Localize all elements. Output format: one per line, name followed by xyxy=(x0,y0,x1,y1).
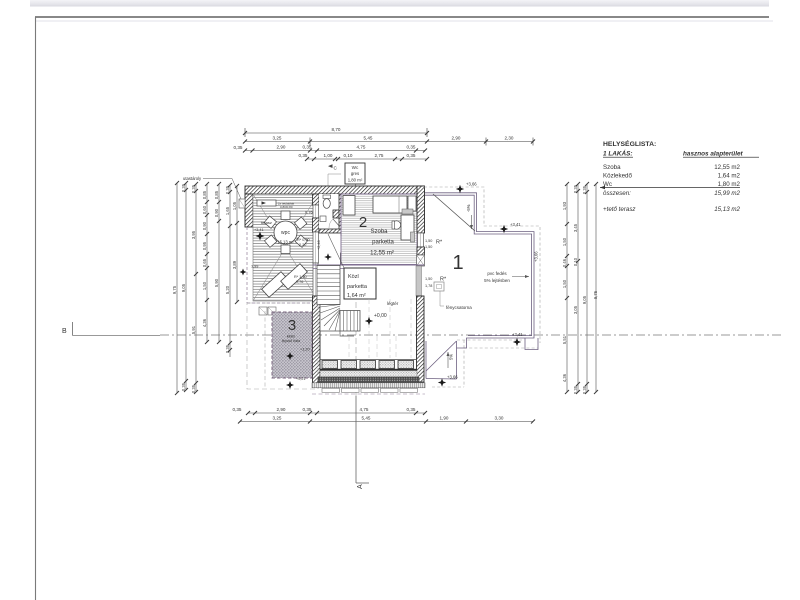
svg-text:5,51: 5,51 xyxy=(562,335,567,344)
svg-text:4,36: 4,36 xyxy=(202,318,207,327)
svg-text:12,55 m2: 12,55 m2 xyxy=(714,164,740,171)
svg-text:5,91: 5,91 xyxy=(191,325,196,334)
svg-text:1,00: 1,00 xyxy=(324,153,333,158)
svg-text:fénycsatorna: fénycsatorna xyxy=(446,305,472,310)
svg-text:2,75: 2,75 xyxy=(375,153,384,158)
svg-text:0,35: 0,35 xyxy=(582,185,587,194)
svg-text:0,60: 0,60 xyxy=(202,205,207,214)
svg-text:2,30: 2,30 xyxy=(505,136,514,141)
svg-text:hasznos alapterület: hasznos alapterület xyxy=(683,151,744,158)
svg-text:0,35: 0,35 xyxy=(407,145,416,150)
svg-text:0,10: 0,10 xyxy=(573,257,578,266)
svg-text:3,95: 3,95 xyxy=(191,230,196,239)
svg-text:0,95: 0,95 xyxy=(202,241,207,250)
svg-text:Wc: Wc xyxy=(352,165,359,170)
svg-text:1: 1 xyxy=(452,252,463,274)
svg-text:0,35: 0,35 xyxy=(225,185,230,194)
svg-text:összesen:: összesen: xyxy=(603,190,631,197)
svg-text:1,05: 1,05 xyxy=(232,201,237,210)
svg-text:0,90: 0,90 xyxy=(202,221,207,230)
svg-text:+3,41: +3,41 xyxy=(254,228,264,232)
svg-text:+2,46: +2,46 xyxy=(317,240,321,250)
svg-text:B: B xyxy=(62,328,67,335)
svg-text:9,75: 9,75 xyxy=(172,285,177,294)
svg-text:0,35: 0,35 xyxy=(234,145,243,150)
svg-text:9,75: 9,75 xyxy=(593,290,598,299)
svg-text:0,35: 0,35 xyxy=(225,344,230,353)
svg-text:3,89: 3,89 xyxy=(232,260,237,269)
svg-text:2,20: 2,20 xyxy=(299,243,306,247)
svg-text:0,35: 0,35 xyxy=(181,183,186,192)
svg-text:0,85: 0,85 xyxy=(214,190,219,199)
svg-text:+3,41: +3,41 xyxy=(512,332,523,337)
svg-text:1,80 m²: 1,80 m² xyxy=(348,178,363,183)
svg-text:Szoba: Szoba xyxy=(370,229,388,235)
svg-text:1,99: 1,99 xyxy=(251,265,258,269)
svg-text:2: 2 xyxy=(359,214,367,231)
svg-text:12,55 m²: 12,55 m² xyxy=(370,251,394,257)
svg-text:2,90: 2,90 xyxy=(277,407,286,412)
svg-text:1,64 m2: 1,64 m2 xyxy=(718,173,741,180)
svg-text:9,05: 9,05 xyxy=(181,283,186,292)
svg-text:gres: gres xyxy=(351,171,359,176)
svg-text:4,75: 4,75 xyxy=(360,407,369,412)
svg-text:Közlekedő: Közlekedő xyxy=(603,173,632,180)
svg-text:5,45: 5,45 xyxy=(362,416,371,421)
svg-text:0,35: 0,35 xyxy=(191,184,196,193)
svg-text:wpc: wpc xyxy=(281,230,290,236)
svg-text:R*: R* xyxy=(436,240,443,246)
svg-text:2,90: 2,90 xyxy=(452,136,461,141)
svg-text:Közl: Közl xyxy=(348,274,359,280)
svg-text:1,50: 1,50 xyxy=(562,279,567,288)
svg-text:1,50: 1,50 xyxy=(562,237,567,246)
svg-text:1,50: 1,50 xyxy=(425,239,432,243)
svg-text:R* 0,90: R* 0,90 xyxy=(297,238,310,242)
svg-text:0,76: 0,76 xyxy=(296,280,303,284)
svg-text:0,35: 0,35 xyxy=(303,407,312,412)
svg-text:utastároly: utastároly xyxy=(183,176,202,181)
svg-text:+0,00: +0,00 xyxy=(374,313,387,319)
svg-text:5,20: 5,20 xyxy=(225,285,230,294)
svg-text:1,93: 1,93 xyxy=(562,201,567,210)
svg-text:3,45: 3,45 xyxy=(573,223,578,232)
svg-text:+3,66: +3,66 xyxy=(447,375,458,380)
svg-text:8,70: 8,70 xyxy=(332,127,341,132)
svg-text:0,46: 0,46 xyxy=(562,258,567,267)
svg-text:légtér: légtér xyxy=(387,301,399,306)
svg-text:3,30: 3,30 xyxy=(495,416,504,421)
svg-text:+0,21: +0,21 xyxy=(296,377,306,381)
svg-text:15,99 m2: 15,99 m2 xyxy=(714,190,740,197)
svg-text:0,65: 0,65 xyxy=(202,258,207,267)
svg-text:0,80/0,80: 0,80/0,80 xyxy=(280,205,293,209)
svg-text:0,85: 0,85 xyxy=(202,190,207,199)
svg-text:15,13 m2: 15,13 m2 xyxy=(714,206,740,213)
svg-text:0,35: 0,35 xyxy=(582,385,587,394)
svg-text:0,35: 0,35 xyxy=(181,382,186,391)
svg-text:1,50: 1,50 xyxy=(425,245,432,249)
svg-text:4,36: 4,36 xyxy=(562,373,567,382)
svg-text:3,25: 3,25 xyxy=(273,416,282,421)
svg-text:0,35: 0,35 xyxy=(573,184,578,193)
svg-text:+3,41: +3,41 xyxy=(510,222,521,227)
svg-text:0,35: 0,35 xyxy=(407,153,416,158)
svg-text:HELYSÉGLISTA:: HELYSÉGLISTA: xyxy=(603,139,656,148)
svg-text:parketta: parketta xyxy=(347,284,368,290)
svg-text:1,64 m²: 1,64 m² xyxy=(347,293,366,299)
svg-text:5% lejtésben: 5% lejtésben xyxy=(484,278,510,283)
svg-text:0,35: 0,35 xyxy=(233,407,242,412)
svg-text:A: A xyxy=(357,484,364,489)
svg-text:9,05: 9,05 xyxy=(582,295,587,304)
svg-text:15,13 m²: 15,13 m² xyxy=(277,240,294,245)
svg-text:1 LAKÁS:: 1 LAKÁS: xyxy=(603,149,632,158)
svg-text:1,78: 1,78 xyxy=(425,284,432,288)
svg-text:0,35: 0,35 xyxy=(407,407,416,412)
svg-text:2,90: 2,90 xyxy=(277,145,286,150)
svg-text:-5%: -5% xyxy=(466,204,471,212)
svg-text:0,10: 0,10 xyxy=(344,153,353,158)
svg-text:4,75: 4,75 xyxy=(357,145,366,150)
svg-text:1,80 m2: 1,80 m2 xyxy=(718,181,741,188)
svg-text:0,76: 0,76 xyxy=(305,210,314,215)
svg-text:+tető terasz: +tető terasz xyxy=(603,206,636,213)
svg-text:3,05: 3,05 xyxy=(573,305,578,314)
svg-text:lépcső háta: lépcső háta xyxy=(282,339,300,343)
svg-text:terasz: terasz xyxy=(261,220,272,225)
svg-text:+3,66: +3,66 xyxy=(466,182,477,187)
svg-text:5,90: 5,90 xyxy=(214,278,219,287)
svg-text:pvc fedés: pvc fedés xyxy=(487,271,507,276)
svg-text:5,45: 5,45 xyxy=(364,136,373,141)
svg-text:1,65: 1,65 xyxy=(225,206,230,215)
svg-text:+3,66: +3,66 xyxy=(534,251,539,262)
svg-text:5%: 5% xyxy=(449,354,454,360)
svg-text:0,35: 0,35 xyxy=(191,384,196,393)
svg-text:3,25: 3,25 xyxy=(273,136,282,141)
svg-text:parketta: parketta xyxy=(372,240,394,246)
svg-text:kilátó: kilátó xyxy=(287,335,295,339)
svg-text:0,90: 0,90 xyxy=(214,208,219,217)
svg-text:3: 3 xyxy=(288,317,296,334)
svg-text:0,35: 0,35 xyxy=(299,153,308,158)
svg-text:1,90: 1,90 xyxy=(440,416,449,421)
svg-text:Szoba: Szoba xyxy=(603,164,621,171)
svg-text:R*: R* xyxy=(440,277,447,283)
svg-text:0,35: 0,35 xyxy=(573,385,578,394)
svg-text:R* 1,50: R* 1,50 xyxy=(294,275,307,279)
svg-text:0,35: 0,35 xyxy=(303,145,312,150)
svg-text:1,50: 1,50 xyxy=(202,281,207,290)
svg-text:+1,20: +1,20 xyxy=(300,348,310,352)
svg-text:1,50: 1,50 xyxy=(425,277,432,281)
